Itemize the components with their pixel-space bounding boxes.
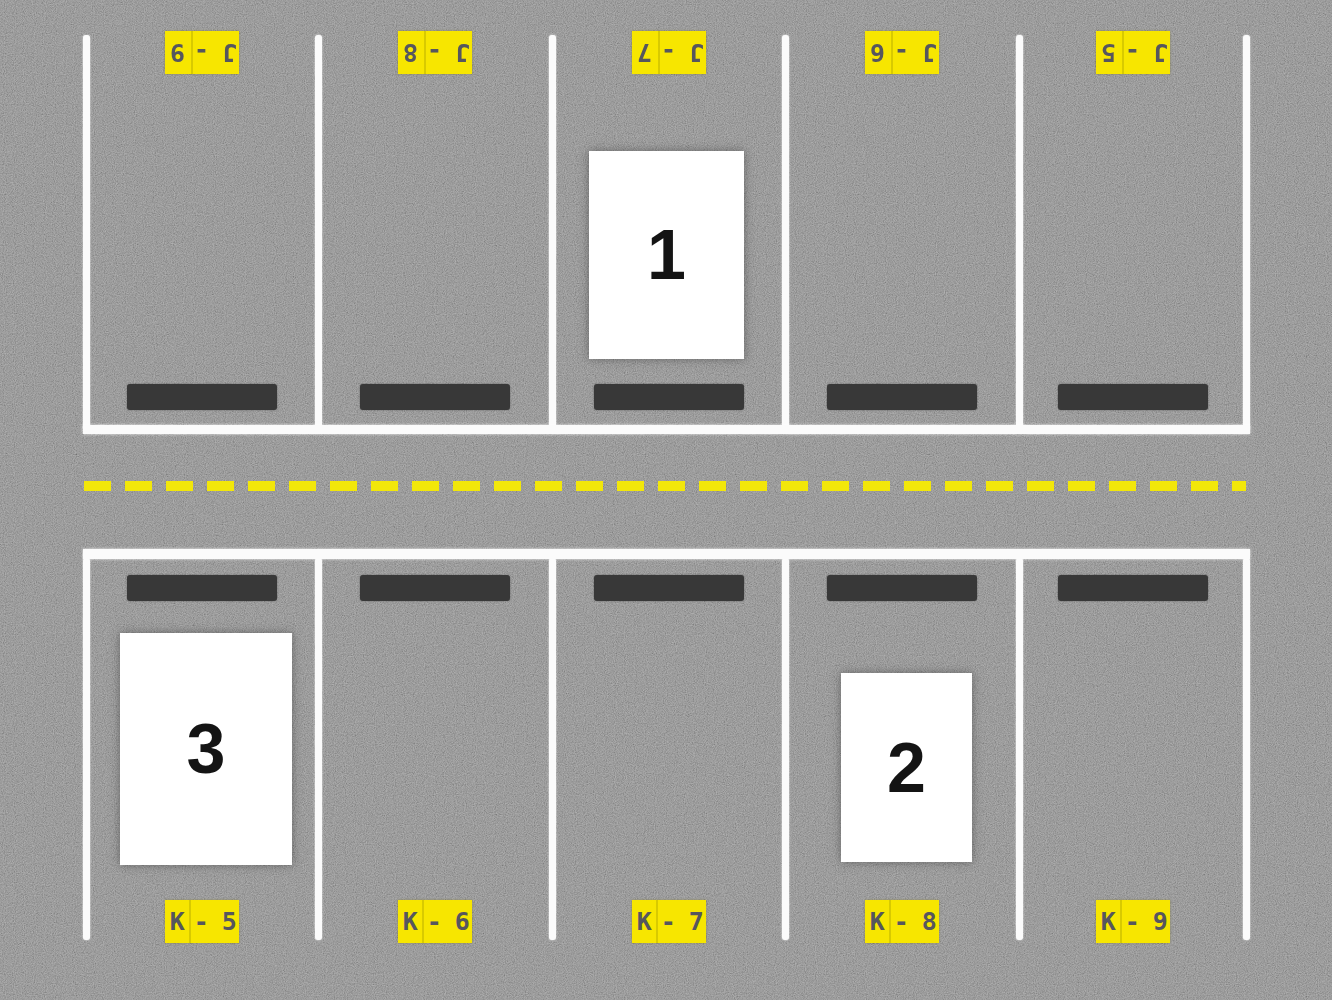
- label-text: K: [632, 900, 658, 943]
- stall-line: [83, 558, 90, 940]
- space-label-j-6: J - 6: [865, 31, 939, 74]
- label-text: - 9: [1122, 900, 1170, 943]
- wheel-stop: [127, 384, 277, 410]
- marker-card-3[interactable]: 3: [120, 633, 292, 865]
- stall-line: [549, 35, 556, 430]
- space-label-j-9: J - 9: [165, 31, 239, 74]
- stall-line: [315, 35, 322, 430]
- space-label-j-7: J - 7: [632, 31, 706, 74]
- wheel-stop: [360, 575, 510, 601]
- marker-card-2[interactable]: 2: [841, 673, 972, 862]
- wheel-stop: [594, 384, 744, 410]
- label-text: - 8: [891, 900, 939, 943]
- label-text: K: [165, 900, 191, 943]
- stall-line: [83, 35, 90, 430]
- label-text: J -: [891, 31, 939, 74]
- stall-line: [1243, 35, 1250, 430]
- wheel-stop: [1058, 575, 1208, 601]
- stall-line: [782, 558, 789, 940]
- label-text: K: [865, 900, 891, 943]
- stall-line: [315, 558, 322, 940]
- label-text: 7: [632, 31, 658, 74]
- label-text: - 7: [658, 900, 706, 943]
- wheel-stop: [1058, 384, 1208, 410]
- bottom-row-stop-line: [83, 549, 1250, 559]
- wheel-stop: [827, 384, 977, 410]
- top-row-stop-line: [83, 425, 1250, 434]
- label-text: J -: [1122, 31, 1170, 74]
- space-label-j-5: J - 5: [1096, 31, 1170, 74]
- space-label-k-7: K - 7: [632, 900, 706, 943]
- marker-number: 1: [647, 215, 686, 295]
- parking-lot: J - 9 J - 8 J - 7 J - 6 J - 5 K - 5 K - …: [0, 0, 1332, 1000]
- marker-number: 3: [187, 709, 226, 789]
- stall-line: [1016, 558, 1023, 940]
- marker-number: 2: [887, 728, 926, 808]
- stall-line: [782, 35, 789, 430]
- stall-line: [1016, 35, 1023, 430]
- label-text: K: [1096, 900, 1122, 943]
- space-label-j-8: J - 8: [398, 31, 472, 74]
- label-text: 5: [1096, 31, 1122, 74]
- label-text: K: [398, 900, 424, 943]
- label-text: J -: [658, 31, 706, 74]
- label-text: J -: [424, 31, 472, 74]
- label-text: 6: [865, 31, 891, 74]
- label-text: J -: [191, 31, 239, 74]
- space-label-k-5: K - 5: [165, 900, 239, 943]
- stall-line: [549, 558, 556, 940]
- label-text: - 6: [424, 900, 472, 943]
- stall-line: [1243, 558, 1250, 940]
- label-text: 8: [398, 31, 424, 74]
- space-label-k-6: K - 6: [398, 900, 472, 943]
- label-text: 9: [165, 31, 191, 74]
- wheel-stop: [594, 575, 744, 601]
- wheel-stop: [127, 575, 277, 601]
- space-label-k-8: K - 8: [865, 900, 939, 943]
- label-text: - 5: [191, 900, 239, 943]
- lane-divider-dashed-line: [84, 481, 1246, 491]
- wheel-stop: [827, 575, 977, 601]
- marker-card-1[interactable]: 1: [589, 151, 744, 359]
- space-label-k-9: K - 9: [1096, 900, 1170, 943]
- wheel-stop: [360, 384, 510, 410]
